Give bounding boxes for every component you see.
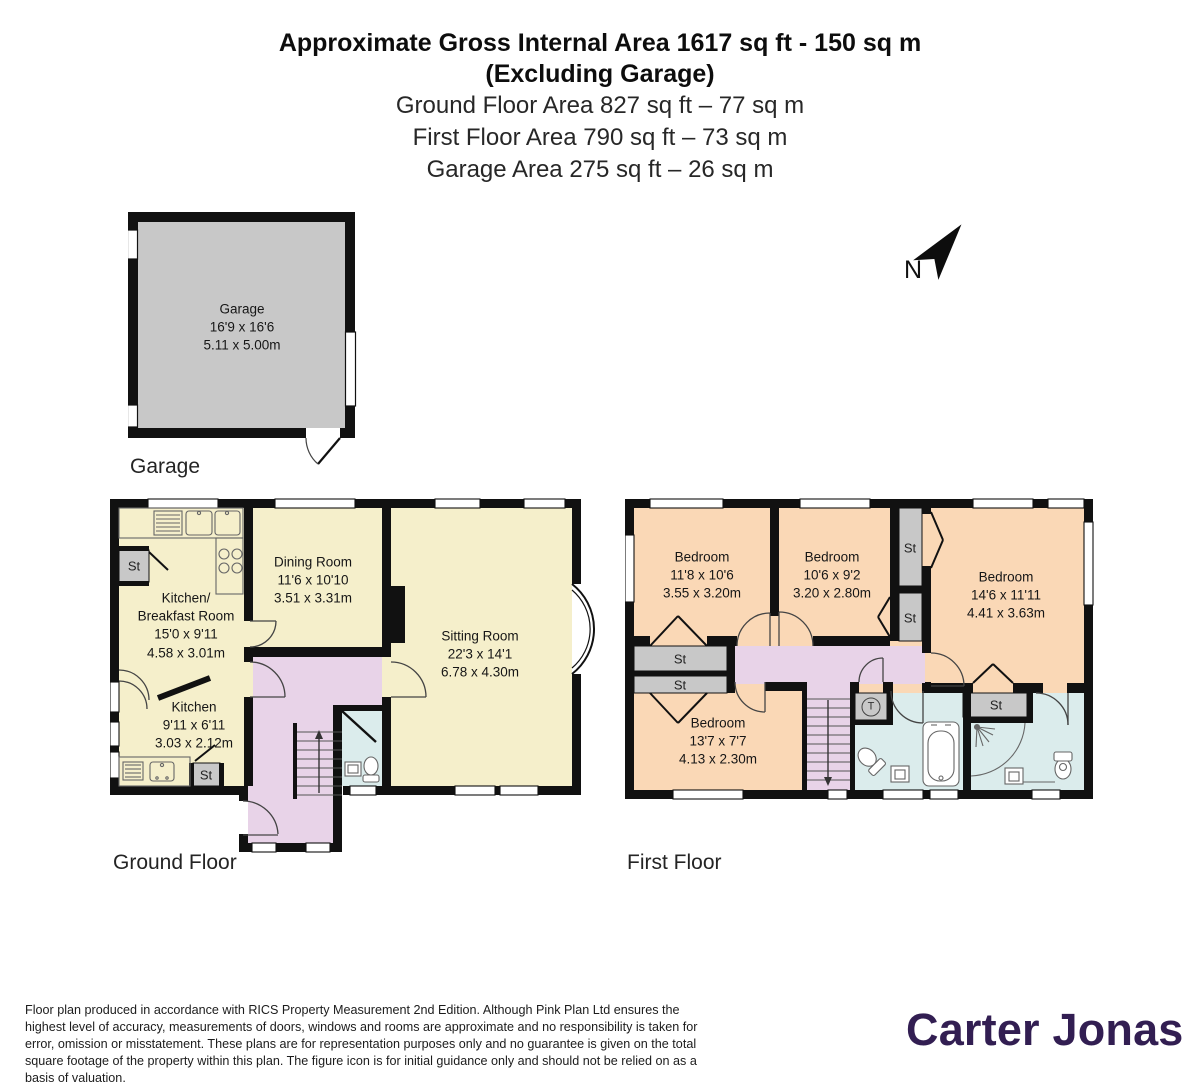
room-name: Garage xyxy=(203,301,280,319)
shower-toilet-icon xyxy=(1054,752,1072,779)
room-size-imperial: 14'6 x 11'11 xyxy=(967,587,1045,605)
ground-floor-area-text: Ground Floor Area 827 sq ft – 77 sq m xyxy=(0,90,1200,122)
room-name: Bedroom xyxy=(793,549,871,567)
room-name: Kitchen xyxy=(155,699,233,717)
garage-floor-plan: Garage 16'9 x 16'6 5.11 x 5.00m xyxy=(128,212,358,442)
room-name: Sitting Room xyxy=(441,628,519,646)
room-name: Bedroom xyxy=(967,569,1045,587)
header: Approximate Gross Internal Area 1617 sq … xyxy=(0,28,1200,186)
tank-label: T xyxy=(862,698,881,717)
storage-label: St xyxy=(128,559,140,574)
storage-label: St xyxy=(674,652,686,667)
room-label-bedroom3: Bedroom 14'6 x 11'11 4.41 x 3.63m xyxy=(967,569,1045,624)
first-floor-area-text: First Floor Area 790 sq ft – 73 sq m xyxy=(0,122,1200,154)
first-floor-plan: Bedroom 11'8 x 10'6 3.55 x 3.20m Bedroom… xyxy=(625,494,1100,806)
room-size-imperial: 15'0 x 9'11 xyxy=(138,626,235,644)
room-size-imperial: 13'7 x 7'7 xyxy=(679,733,757,751)
storage-label: St xyxy=(200,768,212,783)
room-size-metric: 4.13 x 2.30m xyxy=(679,751,757,769)
basin-icon xyxy=(891,766,909,782)
room-size-imperial: 11'8 x 10'6 xyxy=(663,567,741,585)
room-size-imperial: 16'9 x 16'6 xyxy=(203,319,280,337)
back-door-opening xyxy=(110,682,119,712)
room-name: Bedroom xyxy=(663,549,741,567)
page-subtitle-excluding: (Excluding Garage) xyxy=(0,59,1200,90)
room-label-bedroom1: Bedroom 11'8 x 10'6 3.55 x 3.20m xyxy=(663,549,741,604)
disclaimer-text: Floor plan produced in accordance with R… xyxy=(25,1002,701,1086)
north-label: N xyxy=(904,256,922,285)
north-compass: N xyxy=(898,218,984,294)
bay-window xyxy=(572,584,594,674)
garage-caption: Garage xyxy=(130,455,200,479)
ground-floor-caption: Ground Floor xyxy=(113,851,237,875)
ground-floor-drawing xyxy=(110,494,610,864)
room-label-bedroom2: Bedroom 10'6 x 9'2 3.20 x 2.80m xyxy=(793,549,871,604)
room-label-sitting: Sitting Room 22'3 x 14'1 6.78 x 4.30m xyxy=(441,628,519,683)
page-title: Approximate Gross Internal Area 1617 sq … xyxy=(0,28,1200,59)
room-label-kitchen: Kitchen 9'11 x 6'11 3.03 x 2.12m xyxy=(155,699,233,754)
room-name: Bedroom xyxy=(679,715,757,733)
room-size-metric: 3.51 x 3.31m xyxy=(274,590,352,608)
storage-label: St xyxy=(904,611,916,626)
room-size-metric: 4.58 x 3.01m xyxy=(138,644,235,662)
room-size-imperial: 22'3 x 14'1 xyxy=(441,646,519,664)
room-name: Kitchen/ xyxy=(138,590,235,608)
room-name: Dining Room xyxy=(274,554,352,572)
room-size-metric: 5.11 x 5.00m xyxy=(203,337,280,355)
storage-label: St xyxy=(990,698,1002,713)
room-size-metric: 3.55 x 3.20m xyxy=(663,585,741,603)
first-floor-caption: First Floor xyxy=(627,851,722,875)
carter-jonas-logo: Carter Jonas xyxy=(906,1004,1186,1056)
room-label-garage: Garage 16'9 x 16'6 5.11 x 5.00m xyxy=(203,301,280,356)
floor-plan-page: Approximate Gross Internal Area 1617 sq … xyxy=(0,0,1200,1087)
garage-area-text: Garage Area 275 sq ft – 26 sq m xyxy=(0,154,1200,186)
room-label-dining: Dining Room 11'6 x 10'10 3.51 x 3.31m xyxy=(274,554,352,609)
room-size-metric: 3.20 x 2.80m xyxy=(793,585,871,603)
ground-floor-plan: Kitchen/ Breakfast Room 15'0 x 9'11 4.58… xyxy=(110,494,610,864)
storage-label: St xyxy=(904,541,916,556)
bath-icon xyxy=(923,722,959,786)
landing-floor xyxy=(735,646,925,684)
room-size-metric: 3.03 x 2.12m xyxy=(155,735,233,753)
room-size-imperial: 11'6 x 10'10 xyxy=(274,572,352,590)
room-label-bedroom4: Bedroom 13'7 x 7'7 4.13 x 2.30m xyxy=(679,715,757,770)
room-name-line2: Breakfast Room xyxy=(138,608,235,626)
room-size-imperial: 10'6 x 9'2 xyxy=(793,567,871,585)
room-size-metric: 4.41 x 3.63m xyxy=(967,605,1045,623)
room-size-metric: 6.78 x 4.30m xyxy=(441,664,519,682)
room-label-kitchen-breakfast: Kitchen/ Breakfast Room 15'0 x 9'11 4.58… xyxy=(138,590,235,663)
storage-label: St xyxy=(674,678,686,693)
room-size-imperial: 9'11 x 6'11 xyxy=(155,717,233,735)
garage-door xyxy=(306,428,340,464)
